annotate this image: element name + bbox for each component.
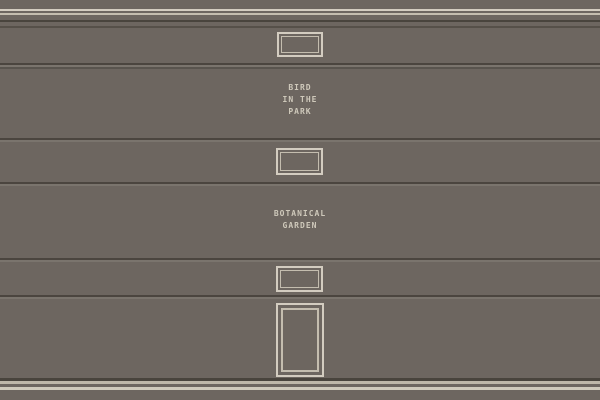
seam-highlight bbox=[0, 297, 600, 299]
building-facade: BIRD IN THE PARK BOTANICAL GARDEN bbox=[0, 0, 600, 400]
sign-line: BIRD bbox=[240, 82, 360, 94]
window-frame-middle bbox=[276, 148, 323, 175]
seam-highlight bbox=[0, 140, 600, 142]
floor-seam-1 bbox=[0, 63, 600, 67]
window-frame-lower bbox=[276, 266, 323, 292]
window-frame-top bbox=[277, 32, 323, 57]
floor-seam-5 bbox=[0, 295, 600, 299]
baseboard-light-stripe bbox=[0, 381, 600, 384]
sidewalk-light-stripe bbox=[0, 387, 600, 390]
sign-botanical-garden: BOTANICAL GARDEN bbox=[240, 208, 360, 232]
window-pane bbox=[280, 152, 319, 171]
floor-seam-2 bbox=[0, 138, 600, 142]
window-pane bbox=[281, 36, 319, 53]
sign-line: PARK bbox=[240, 106, 360, 118]
seam-highlight bbox=[0, 260, 600, 262]
seam-highlight bbox=[0, 65, 600, 67]
door-panel bbox=[281, 308, 319, 372]
sign-bird-in-the-park: BIRD IN THE PARK bbox=[240, 82, 360, 118]
sign-line: GARDEN bbox=[240, 220, 360, 232]
cornice-stripe-upper bbox=[0, 9, 600, 11]
floor-seam-3 bbox=[0, 182, 600, 186]
sign-line: IN THE bbox=[240, 94, 360, 106]
entrance-door[interactable] bbox=[276, 303, 324, 377]
seam-highlight bbox=[0, 184, 600, 186]
sign-line: BOTANICAL bbox=[240, 208, 360, 220]
cornice-stripe-lower bbox=[0, 13, 600, 15]
floor-seam-4 bbox=[0, 258, 600, 262]
cornice-shadow-line bbox=[0, 26, 600, 28]
cornice-dark-line bbox=[0, 20, 600, 22]
window-pane bbox=[280, 270, 319, 288]
